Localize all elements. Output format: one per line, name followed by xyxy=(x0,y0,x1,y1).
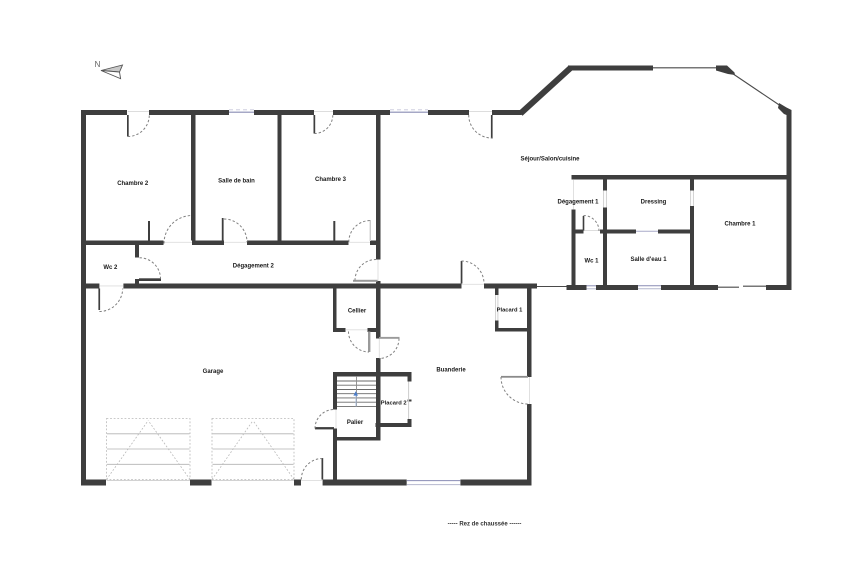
svg-text:Dégagement 1: Dégagement 1 xyxy=(557,199,599,205)
svg-text:Salle de bain: Salle de bain xyxy=(218,178,255,184)
svg-text:N: N xyxy=(95,60,101,69)
svg-text:----- Rez de chaussée ------: ----- Rez de chaussée ------ xyxy=(448,521,522,527)
svg-text:Chambre 1: Chambre 1 xyxy=(724,221,756,227)
svg-text:Wc 1: Wc 1 xyxy=(584,259,599,265)
svg-text:Cellier: Cellier xyxy=(348,309,367,315)
svg-text:Chambre 2: Chambre 2 xyxy=(117,181,149,187)
svg-text:Buanderie: Buanderie xyxy=(436,367,466,373)
svg-text:Placard 1: Placard 1 xyxy=(497,308,524,314)
svg-text:Dressing: Dressing xyxy=(641,200,667,206)
svg-text:Chambre 3: Chambre 3 xyxy=(315,177,347,183)
svg-text:Séjour/Salon/cuisine: Séjour/Salon/cuisine xyxy=(520,156,580,162)
svg-text:Dégagement 2: Dégagement 2 xyxy=(233,264,275,270)
svg-text:Placard 2: Placard 2 xyxy=(381,401,407,407)
svg-text:Wc 2: Wc 2 xyxy=(103,265,118,271)
svg-text:Garage: Garage xyxy=(203,369,224,375)
svg-text:Salle d'eau 1: Salle d'eau 1 xyxy=(630,257,667,263)
svg-text:Palier: Palier xyxy=(347,420,364,426)
